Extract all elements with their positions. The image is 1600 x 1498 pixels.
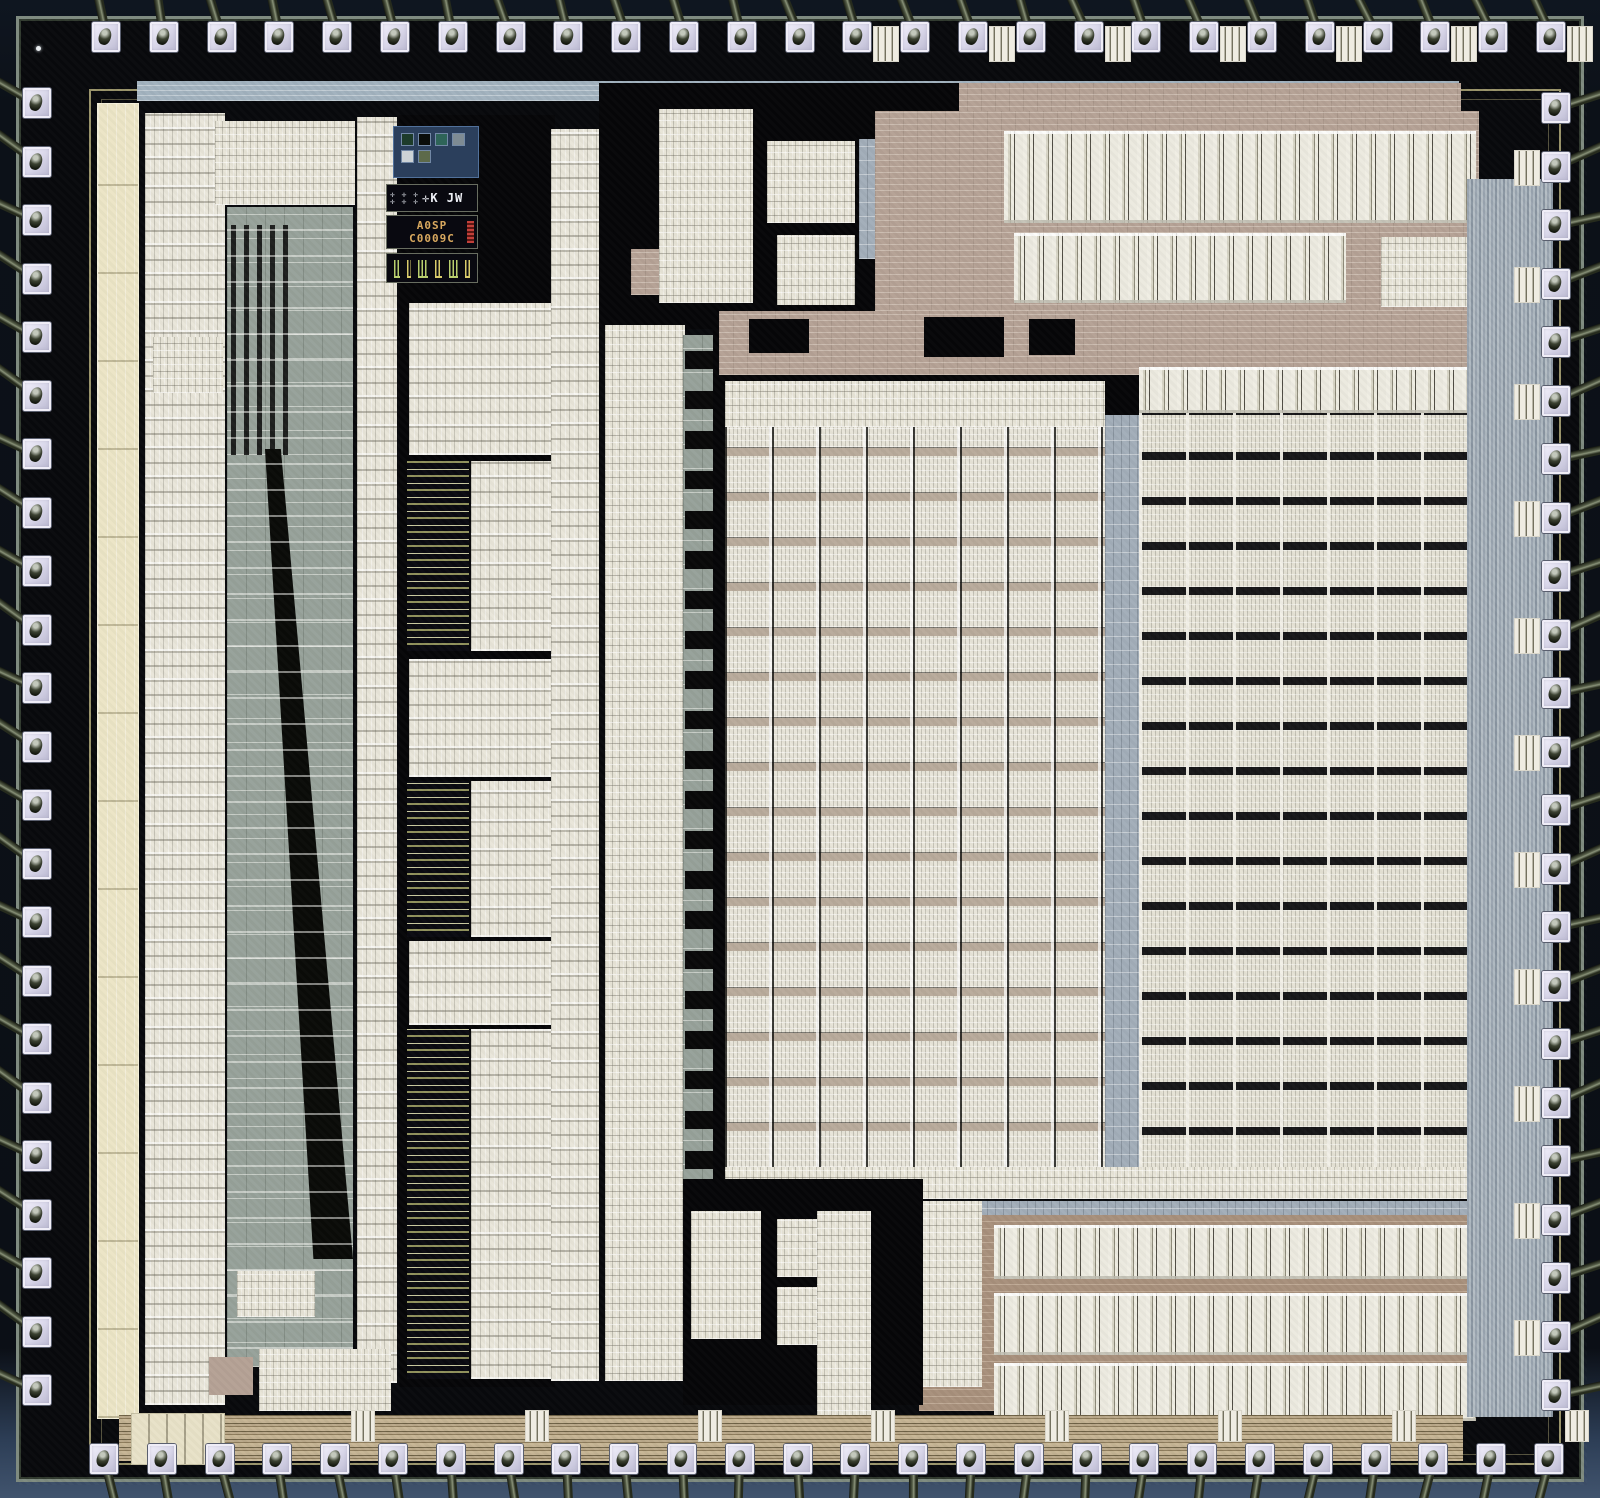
bond-pad-right — [1542, 386, 1570, 416]
vernier-mark — [394, 260, 400, 278]
bond-pad-left — [23, 1024, 51, 1054]
designer-initials-text: ✛K JW — [422, 191, 463, 205]
bond-pad-left — [23, 205, 51, 235]
bond-pad-bottom — [1477, 1444, 1505, 1474]
right-bus-band — [1467, 179, 1553, 1417]
bond-pad-right — [1542, 503, 1570, 533]
silicon-die — [16, 16, 1584, 1482]
bond-pad-left — [23, 1141, 51, 1171]
col2-rom-2 — [407, 781, 469, 937]
bond-pad-top — [1537, 22, 1565, 52]
bond-pad-bottom — [1015, 1444, 1043, 1474]
col2-datapath-2 — [409, 659, 551, 777]
bond-pad-right — [1542, 561, 1570, 591]
bond-pad-top — [1364, 22, 1392, 52]
io-driver-cell — [1514, 852, 1540, 888]
part-number-line1: A0SP — [387, 219, 477, 232]
bond-pad-top — [1017, 22, 1045, 52]
bond-pad-bottom — [206, 1444, 234, 1474]
io-driver-cell — [1567, 26, 1593, 62]
io-driver-cell — [698, 1410, 722, 1442]
vernier-mark — [435, 260, 442, 278]
bond-pad-right — [1542, 854, 1570, 884]
bond-pad-right — [1542, 620, 1570, 650]
col2-datapath-3 — [409, 941, 551, 1025]
bond-pad-left — [23, 439, 51, 469]
bond-pad-bottom — [90, 1444, 118, 1474]
io-driver-cell — [1514, 150, 1540, 186]
col2-datapath-1 — [409, 303, 551, 455]
mask-test-pattern-block — [393, 126, 479, 178]
bond-pad-bottom — [957, 1444, 985, 1474]
bond-pad-top — [670, 22, 698, 52]
io-driver-cell — [1218, 1410, 1242, 1442]
bond-pad-bottom — [1073, 1444, 1101, 1474]
bond-pad-top — [265, 22, 293, 52]
bond-pad-left — [23, 615, 51, 645]
vernier-mark — [418, 260, 428, 278]
bond-pad-right — [1542, 1205, 1570, 1235]
bond-pad-top — [843, 22, 871, 52]
bond-pad-left — [23, 1258, 51, 1288]
core-mauve-routing — [719, 311, 1477, 375]
bond-pad-left — [23, 322, 51, 352]
bond-pad-top — [208, 22, 236, 52]
bond-pad-top — [497, 22, 525, 52]
io-driver-cell — [1565, 1410, 1589, 1442]
bond-pad-bottom — [726, 1444, 754, 1474]
vernier-strip — [386, 253, 478, 283]
col2-cell-column — [357, 117, 397, 1383]
io-driver-cell — [1336, 26, 1362, 62]
bond-pad-bottom — [148, 1444, 176, 1474]
red-mask-mark — [467, 221, 474, 243]
bond-pad-top — [1190, 22, 1218, 52]
bond-pad-top — [786, 22, 814, 52]
io-driver-cell — [1514, 735, 1540, 771]
io-driver-cell — [525, 1410, 549, 1442]
bond-pad-left — [23, 1317, 51, 1347]
bond-pad-top — [901, 22, 929, 52]
bond-pad-right — [1542, 93, 1570, 123]
topmid-logic-b — [767, 141, 855, 223]
array-divider-column — [1105, 415, 1139, 1169]
bottomright-band-1 — [994, 1225, 1476, 1279]
bond-pad-top — [150, 22, 178, 52]
bottommid-column — [817, 1211, 871, 1425]
io-driver-cell — [1045, 1410, 1069, 1442]
io-driver-cell — [1451, 26, 1477, 62]
bond-pad-bottom — [1246, 1444, 1274, 1474]
io-driver-cell — [351, 1410, 375, 1442]
bond-pad-right — [1542, 327, 1570, 357]
bond-pad-top — [554, 22, 582, 52]
io-driver-cell — [1514, 969, 1540, 1005]
topmid-logic-c — [777, 235, 855, 307]
bond-pad-left — [23, 1083, 51, 1113]
io-driver-cell — [873, 26, 899, 62]
bottomright-side-block — [922, 1201, 982, 1387]
routing-black-3 — [1029, 319, 1075, 355]
bond-pad-top — [959, 22, 987, 52]
col2-cells-2 — [471, 781, 551, 937]
io-driver-cell — [1514, 267, 1540, 303]
leftarray-header-row — [725, 381, 1105, 427]
bond-pad-bottom — [263, 1444, 291, 1474]
bond-pad-top — [1421, 22, 1449, 52]
mask-test-swatch — [401, 133, 414, 146]
bond-pad-right — [1542, 1029, 1570, 1059]
mid-cell-strip — [605, 325, 685, 1381]
bond-pad-top — [612, 22, 640, 52]
io-driver-cell — [871, 1410, 895, 1442]
mask-test-swatch — [418, 150, 431, 163]
bond-pad-top — [1075, 22, 1103, 52]
bond-pad-right — [1542, 1088, 1570, 1118]
topright-array-2 — [1014, 233, 1346, 303]
bond-pad-left — [23, 1375, 51, 1405]
bond-pad-right — [1542, 971, 1570, 1001]
io-driver-cell — [1514, 501, 1540, 537]
bond-pad-top — [381, 22, 409, 52]
bond-pad-top — [1306, 22, 1334, 52]
die-photograph: ✛ ✛ ✛ ✛ ✛ ✛ ✛K JW A0SP C0009C — [0, 0, 1600, 1498]
bond-pad-left — [23, 1200, 51, 1230]
bond-pad-bottom — [1188, 1444, 1216, 1474]
bond-pad-left — [23, 88, 51, 118]
bond-pad-top — [323, 22, 351, 52]
bond-pad-bottom — [610, 1444, 638, 1474]
bottomleft-block-b — [237, 1271, 315, 1317]
bond-pad-right — [1542, 1146, 1570, 1176]
bond-pad-top — [1132, 22, 1160, 52]
topright-array-1 — [1004, 131, 1476, 223]
mask-test-swatch — [435, 133, 448, 146]
bond-pad-right — [1542, 269, 1570, 299]
vernier-mark — [407, 260, 411, 278]
bond-pad-left — [23, 498, 51, 528]
bond-pad-left — [23, 732, 51, 762]
bond-pad-left — [23, 264, 51, 294]
rightarray-header-row — [1139, 367, 1475, 413]
bond-pad-right — [1542, 444, 1570, 474]
main-array-right — [1139, 413, 1475, 1169]
topmid-logic-a — [659, 109, 753, 303]
bond-pad-bottom — [899, 1444, 927, 1474]
bond-pad-right — [1542, 678, 1570, 708]
io-driver-cell — [1514, 1203, 1540, 1239]
topright-block — [1381, 237, 1477, 307]
io-driver-cell — [1105, 26, 1131, 62]
bond-pad-right — [1542, 1263, 1570, 1293]
io-driver-cell — [1514, 384, 1540, 420]
bond-pad-top — [728, 22, 756, 52]
col2-cells-3 — [471, 1029, 551, 1379]
bond-pad-left — [23, 966, 51, 996]
bond-pad-top — [1479, 22, 1507, 52]
mask-test-swatch — [452, 133, 465, 146]
bond-pad-bottom — [379, 1444, 407, 1474]
bond-pad-right — [1542, 210, 1570, 240]
col2-cells-1 — [471, 461, 551, 651]
bottomleft-cluster — [259, 1349, 391, 1411]
bottomleft-mauve-patch — [209, 1357, 253, 1395]
bottommid-logic-a — [691, 1211, 761, 1339]
left-channel-fanlines — [227, 229, 353, 1349]
alignment-cross-marks: ✛ ✛ ✛ ✛ ✛ ✛ — [390, 191, 419, 205]
bond-pad-bottom — [552, 1444, 580, 1474]
bond-pad-bottom — [321, 1444, 349, 1474]
dust-particle — [36, 46, 41, 51]
bond-pad-bottom — [1304, 1444, 1332, 1474]
topleft-logic-cluster — [215, 121, 355, 205]
routing-black-1 — [749, 319, 809, 353]
bottomright-band-2 — [994, 1293, 1476, 1355]
mask-test-swatch — [401, 150, 414, 163]
col2-rom-3 — [407, 1029, 469, 1379]
bond-pad-right — [1542, 1322, 1570, 1352]
small-logic-block-a — [153, 337, 223, 393]
vernier-mark — [465, 260, 470, 278]
bond-pad-right — [1542, 1380, 1570, 1410]
io-driver-cell — [989, 26, 1015, 62]
bond-pad-left — [23, 849, 51, 879]
bond-pad-bottom — [437, 1444, 465, 1474]
bond-pad-bottom — [784, 1444, 812, 1474]
bond-pad-right — [1542, 912, 1570, 942]
bond-pad-top — [92, 22, 120, 52]
bond-pad-right — [1542, 795, 1570, 825]
bond-pad-bottom — [1362, 1444, 1390, 1474]
routing-black-2 — [924, 317, 1004, 357]
mask-test-swatch — [418, 133, 431, 146]
io-driver-cell — [1514, 618, 1540, 654]
bond-pad-left — [23, 907, 51, 937]
io-driver-cell — [1514, 1086, 1540, 1122]
io-driver-cell — [1220, 26, 1246, 62]
part-number-line2: C0009C — [387, 232, 477, 245]
bond-pad-top — [439, 22, 467, 52]
bond-pad-left — [23, 673, 51, 703]
part-number-strip: A0SP C0009C — [386, 215, 478, 249]
bond-pad-left — [23, 381, 51, 411]
vernier-mark — [449, 260, 458, 278]
bond-pad-bottom — [1419, 1444, 1447, 1474]
io-driver-cell — [1392, 1410, 1416, 1442]
mask-registration-strip: ✛ ✛ ✛ ✛ ✛ ✛ ✛K JW — [386, 184, 478, 212]
main-array-left — [725, 427, 1105, 1167]
left-cell-column — [145, 113, 225, 1405]
bond-pad-right — [1542, 737, 1570, 767]
bond-pad-right — [1542, 152, 1570, 182]
bond-pad-bottom — [495, 1444, 523, 1474]
bond-pad-left — [23, 556, 51, 586]
bond-pad-bottom — [841, 1444, 869, 1474]
bond-pad-bottom — [1535, 1444, 1563, 1474]
io-driver-cell — [1514, 1320, 1540, 1356]
bond-pad-bottom — [1130, 1444, 1158, 1474]
left-cream-strip — [97, 103, 139, 1419]
bond-pad-left — [23, 790, 51, 820]
bond-pad-bottom — [668, 1444, 696, 1474]
bond-pad-top — [1248, 22, 1276, 52]
col2-rom-1 — [407, 461, 469, 651]
bond-pad-left — [23, 147, 51, 177]
col3-cell-column — [551, 129, 599, 1381]
